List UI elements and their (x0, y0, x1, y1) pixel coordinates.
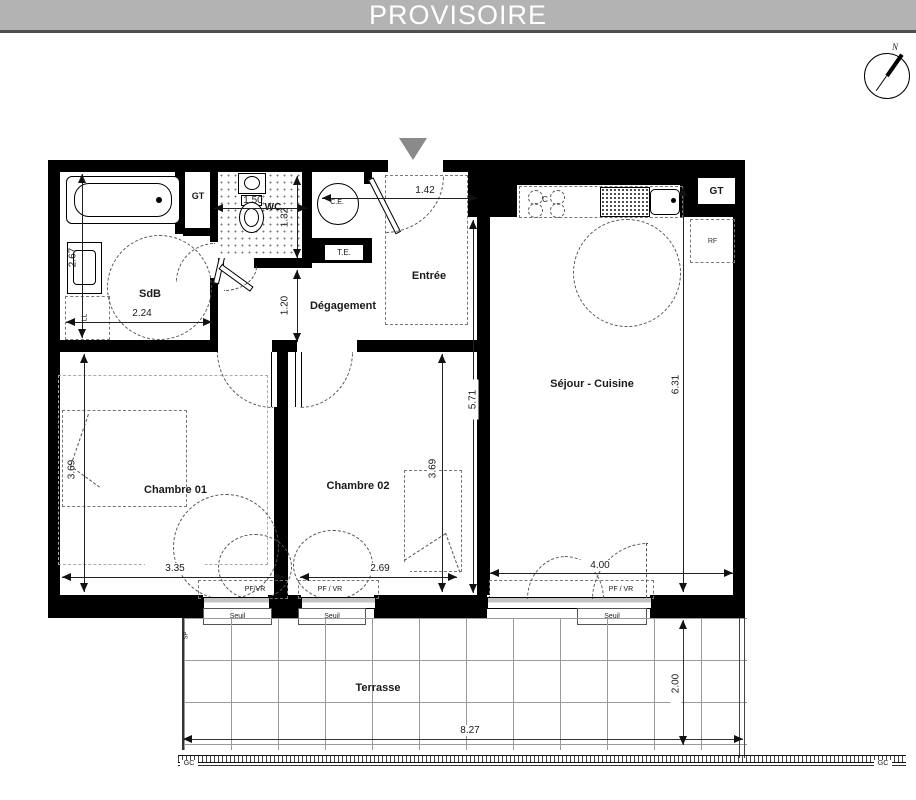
dimension-value: 2.00 (671, 664, 682, 704)
dimension-value: 3.69 (428, 449, 439, 489)
hand-basin-bowl (244, 176, 260, 190)
dimension-value: 2.69 (350, 563, 410, 574)
dimension-value: 8.27 (440, 725, 500, 736)
provisional-banner: PROVISOIRE (0, 0, 916, 33)
burner-icon (550, 203, 565, 218)
dim-arrow (469, 584, 477, 593)
electrical-panel: T.E. (324, 244, 364, 261)
dimension-line (214, 208, 307, 209)
compass-tail (876, 76, 887, 91)
dim-arrow (679, 620, 687, 629)
dim-arrow (679, 187, 687, 196)
bathtub-faucet-icon (156, 197, 162, 203)
sink-faucet-icon (671, 198, 676, 203)
dim-arrow (293, 176, 301, 185)
wall (477, 217, 490, 595)
window-label: PF / VR (300, 586, 360, 594)
dimension-value: 6.31 (671, 365, 682, 405)
wall (48, 160, 388, 172)
dimension-value: 1.50 (228, 195, 278, 206)
dim-arrow (183, 735, 192, 743)
dim-arrow (469, 220, 477, 229)
dimension-line (66, 322, 212, 323)
dimension-value: 1.20 (280, 286, 291, 326)
dim-arrow (293, 249, 301, 258)
cooktop-label: C (533, 196, 557, 205)
sink-drainer (600, 187, 650, 217)
duct-kitchen-label: GT (710, 186, 724, 197)
wall (650, 595, 745, 618)
dim-arrow (203, 318, 212, 326)
door-swing-arc (527, 556, 566, 599)
dimension-line (442, 354, 443, 592)
dim-arrow (298, 204, 307, 212)
room-label-sdb: SdB (115, 288, 185, 300)
dimension-line (297, 270, 298, 342)
wall (374, 595, 487, 618)
dim-arrow (300, 573, 309, 581)
room-label-degagement: Dégagement (303, 300, 383, 312)
terrace-edge (744, 618, 745, 758)
dim-arrow (724, 569, 733, 577)
floor-plan: PROVISOIRE N GT LL SdB (0, 0, 916, 800)
room-label-entree: Entrée (398, 270, 460, 282)
railing-label: GC (180, 760, 198, 768)
dimension-value: 4.00 (570, 560, 630, 571)
dim-arrow (214, 204, 223, 212)
burner-icon (528, 203, 543, 218)
electrical-panel-label: T.E. (337, 248, 351, 257)
dim-arrow (293, 270, 301, 279)
window-label: PF/VR (230, 586, 280, 594)
door-leaf-line (646, 543, 647, 598)
turning-circle (573, 219, 681, 327)
room-label-chambre2: Chambre 02 (320, 480, 396, 492)
dim-arrow (448, 573, 457, 581)
dimension-line (683, 620, 684, 745)
dim-arrow (438, 583, 446, 592)
fridge-slot: RF (690, 219, 735, 263)
banner-title: PROVISOIRE (369, 0, 547, 31)
dimension-value: 2.24 (112, 308, 172, 319)
dimension-line (62, 577, 284, 578)
compass-needle (885, 54, 903, 78)
dimension-line (300, 577, 457, 578)
room-label-sejour: Séjour - Cuisine (542, 378, 642, 390)
wall (48, 595, 203, 618)
dimension-line (82, 174, 83, 338)
dimension-line (84, 354, 85, 592)
dimension-line (490, 573, 733, 574)
room-label-chambre1: Chambre 01 (138, 484, 213, 496)
dimension-value: 3.69 (67, 450, 78, 490)
dimension-value: 2.67 (68, 238, 79, 278)
dim-arrow (78, 174, 86, 183)
wall (254, 258, 302, 268)
dim-arrow (322, 194, 331, 202)
duct-kitchen: GT (698, 178, 735, 204)
door-swing-arc (300, 352, 353, 408)
duct-label: GT (183, 192, 213, 202)
door-swing-arc (592, 543, 648, 599)
north-compass-icon (864, 53, 910, 99)
dim-arrow (66, 318, 75, 326)
dimension-value: 1.42 (395, 185, 455, 196)
dimension-value: 5.71 (468, 380, 479, 420)
room-label-terrasse: Terrasse (340, 682, 416, 694)
wall (48, 340, 215, 352)
dimension-value: 1.32 (280, 198, 291, 238)
dim-arrow (80, 583, 88, 592)
sp-label: SP (184, 616, 195, 656)
dim-arrow (734, 735, 743, 743)
railing (178, 755, 906, 763)
dim-arrow (490, 569, 499, 577)
dim-arrow (78, 329, 86, 338)
dimension-value: 3.35 (145, 563, 205, 574)
wall (183, 228, 212, 236)
dim-arrow (80, 354, 88, 363)
railing-line (178, 765, 906, 766)
entry-arrow-icon (399, 138, 427, 160)
dim-arrow (679, 736, 687, 745)
wall (357, 340, 478, 352)
wall (302, 172, 312, 268)
dim-arrow (293, 333, 301, 342)
railing-label: GC (874, 760, 892, 768)
dim-arrow (468, 194, 477, 202)
dim-arrow (62, 573, 71, 581)
dim-arrow (679, 583, 687, 592)
wall (468, 160, 517, 217)
north-label: N (888, 43, 902, 53)
dimension-line (683, 187, 684, 592)
fridge-label: RF (708, 238, 717, 245)
wall (443, 160, 470, 172)
dimension-line (297, 176, 298, 258)
dim-arrow (438, 354, 446, 363)
dimension-line (183, 739, 743, 740)
dimension-line (322, 198, 477, 199)
dim-arrow (275, 573, 284, 581)
